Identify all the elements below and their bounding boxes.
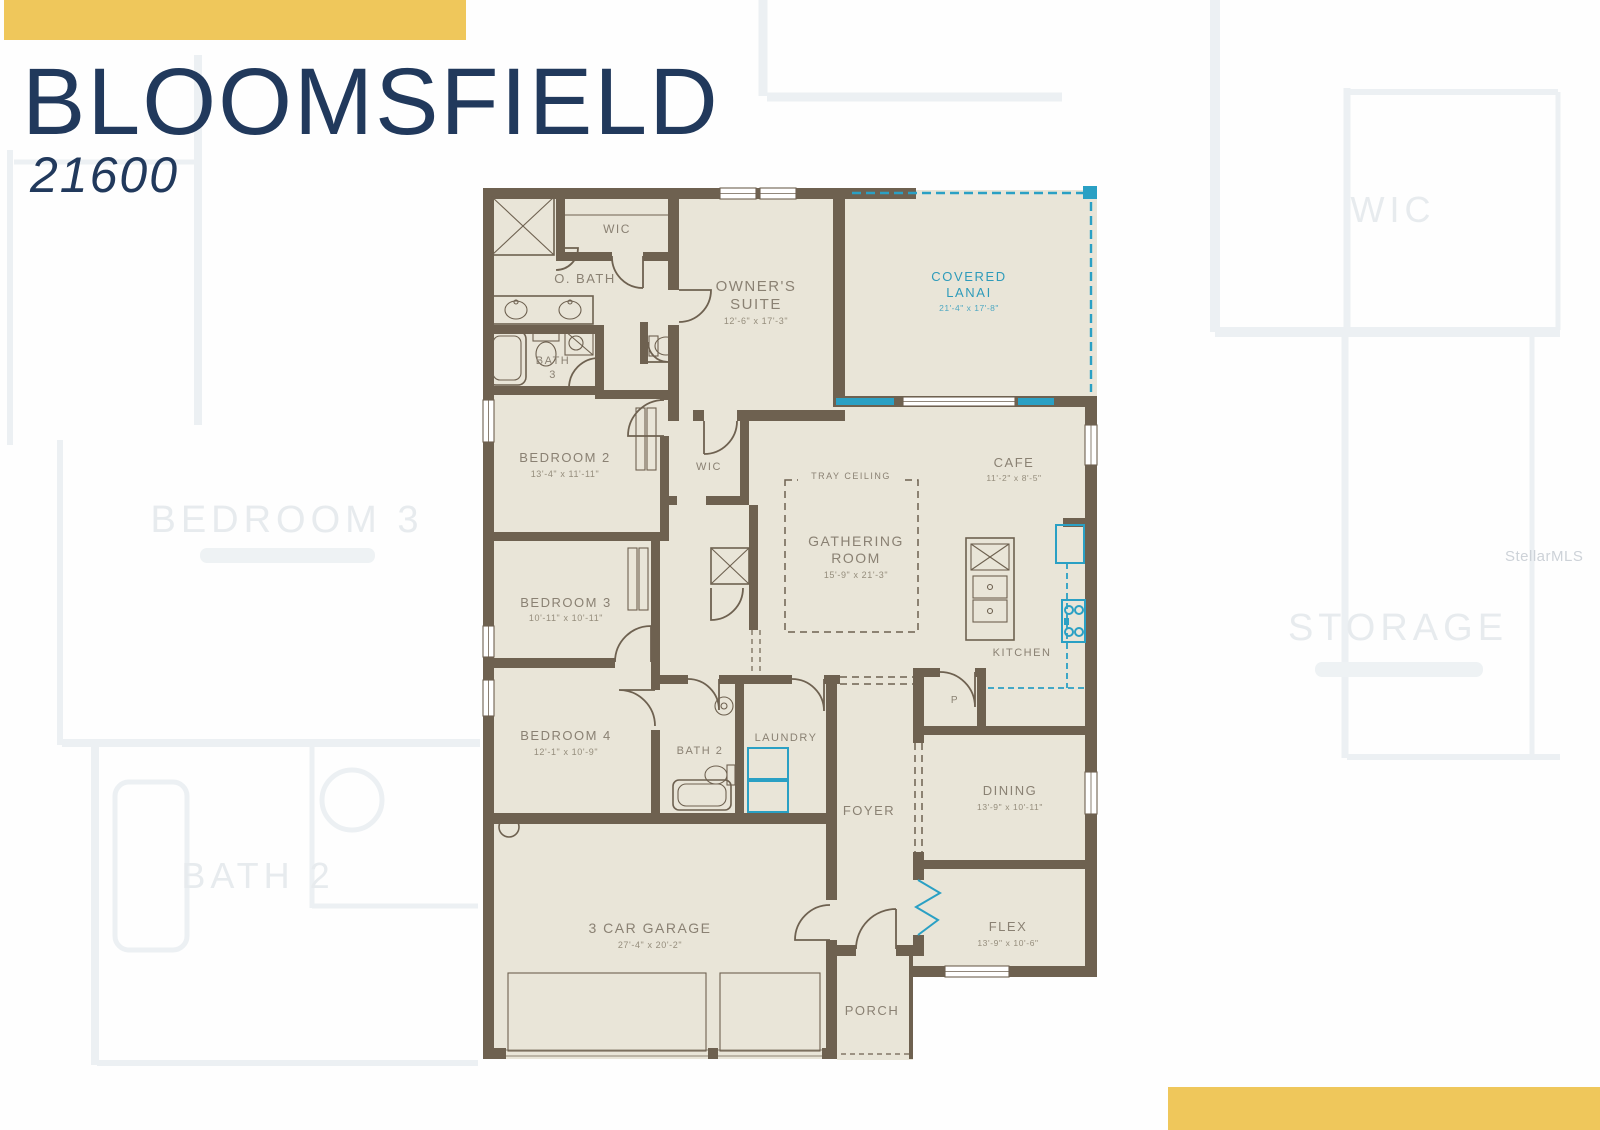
top-accent-bar bbox=[4, 0, 466, 40]
floorplan-drawing: WIC O. BATH BATH 3 OWNER'S SUITE 12'-6" … bbox=[478, 183, 1103, 1067]
bg-label-bath2: BATH 2 bbox=[181, 855, 334, 896]
label-laundry: LAUNDRY bbox=[755, 732, 818, 744]
label-kitchen: KITCHEN bbox=[993, 647, 1052, 659]
label-pantry: P bbox=[951, 695, 959, 706]
label-cafe: CAFE bbox=[994, 455, 1035, 470]
label-bath3-line2: 3 bbox=[549, 369, 557, 381]
dims-bedroom2: 13'-4" x 11'-11" bbox=[531, 469, 600, 479]
label-flex: FLEX bbox=[989, 919, 1028, 934]
dims-covered-lanai: 21'-4" x 17'-8" bbox=[939, 303, 999, 313]
label-bedroom4: BEDROOM 4 bbox=[520, 728, 612, 743]
bg-label-storage: STORAGE bbox=[1288, 607, 1508, 649]
dims-cafe: 11'-2" x 8'-5" bbox=[986, 473, 1041, 483]
bg-label-bedroom3: BEDROOM 3 bbox=[150, 499, 423, 541]
label-bedroom3: BEDROOM 3 bbox=[520, 595, 612, 610]
label-covered-lanai-line1: COVERED bbox=[931, 269, 1007, 284]
label-gathering-line1: GATHERING bbox=[808, 533, 904, 549]
dims-gathering: 15'-9" x 21'-3" bbox=[824, 570, 888, 580]
label-owners-suite-line2: SUITE bbox=[730, 296, 782, 313]
label-owner-bath: O. BATH bbox=[554, 271, 616, 286]
bg-dims-blur-storage bbox=[1315, 662, 1483, 677]
bottom-accent-bar bbox=[1168, 1087, 1600, 1130]
label-foyer: FOYER bbox=[843, 803, 895, 818]
stellar-mls-watermark: StellarMLS bbox=[1505, 548, 1583, 565]
label-owner-wic: WIC bbox=[603, 222, 631, 236]
plan-title: BLOOMSFIELD bbox=[22, 48, 720, 157]
dims-garage: 27'-4" x 20'-2" bbox=[618, 940, 682, 950]
label-hall-wic: WIC bbox=[696, 461, 722, 473]
dims-dining: 13'-9" x 10'-11" bbox=[977, 802, 1043, 812]
label-garage: 3 CAR GARAGE bbox=[588, 920, 711, 936]
dims-flex: 13'-9" x 10'-6" bbox=[977, 938, 1038, 948]
dims-bedroom4: 12'-1" x 10'-9" bbox=[534, 747, 598, 757]
floorplan-sheet: WIC BEDROOM 3 STORAGE BATH 2 BLOOMSFIELD… bbox=[0, 0, 1600, 1130]
label-owners-suite-line1: OWNER'S bbox=[716, 278, 797, 295]
label-gathering-line2: ROOM bbox=[831, 550, 881, 566]
dims-bedroom3: 10'-11" x 10'-11" bbox=[529, 613, 603, 623]
label-tray-ceiling: TRAY CEILING bbox=[811, 471, 891, 481]
label-porch: PORCH bbox=[845, 1003, 899, 1018]
plan-number: 21600 bbox=[30, 146, 179, 204]
label-dining: DINING bbox=[983, 783, 1038, 798]
bg-label-wic: WIC bbox=[1351, 189, 1436, 230]
label-bath2: BATH 2 bbox=[677, 745, 724, 757]
label-bedroom2: BEDROOM 2 bbox=[519, 450, 611, 465]
label-covered-lanai-line2: LANAI bbox=[946, 285, 992, 300]
bg-dims-blur-bedroom3 bbox=[200, 548, 375, 563]
label-bath3-line1: BATH bbox=[536, 355, 571, 367]
dims-owners-suite: 12'-6" x 17'-3" bbox=[724, 316, 788, 326]
